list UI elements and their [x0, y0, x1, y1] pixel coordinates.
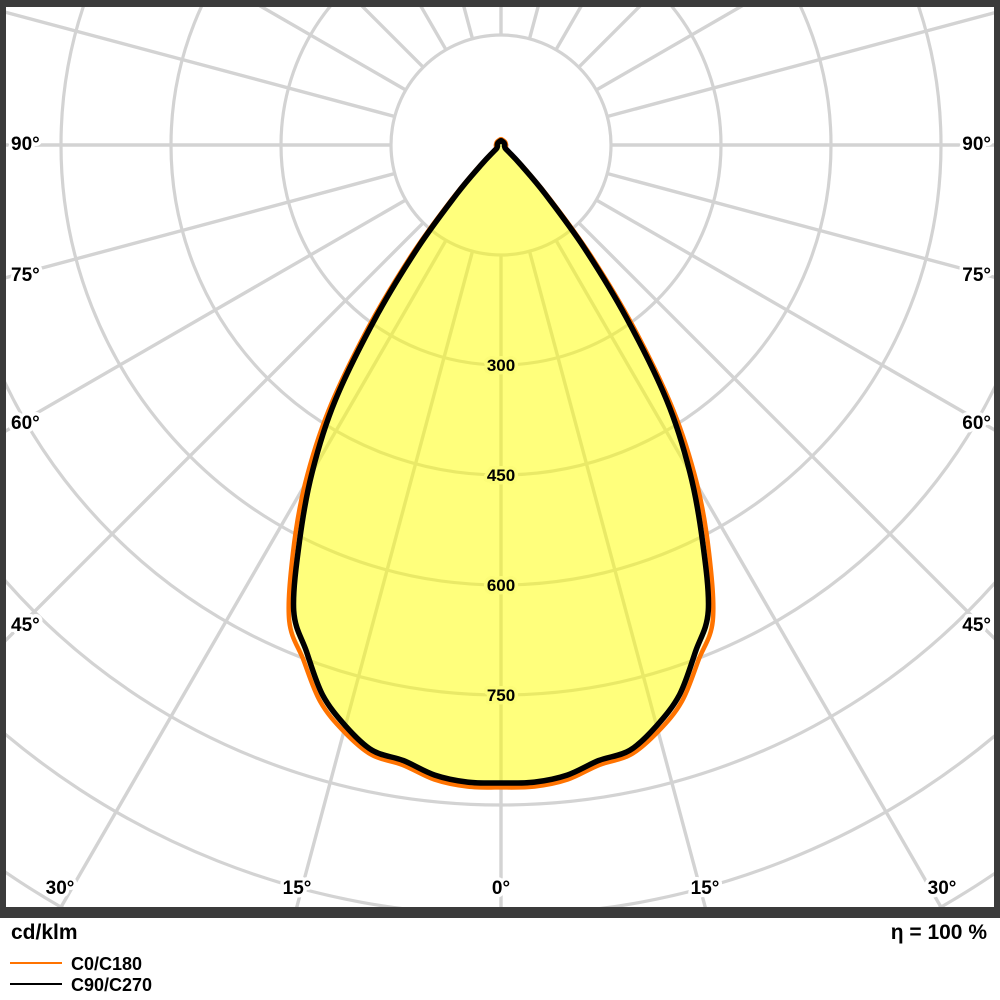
angle-label-bottom-right-15: 15° — [691, 878, 720, 899]
grid-spoke-225 — [0, 0, 423, 67]
legend-series-name: C0/C180 — [71, 954, 142, 975]
radial-value-label-300: 300 — [487, 356, 515, 375]
angle-label-bottom-right-30: 30° — [928, 878, 957, 899]
grid-spoke-120 — [596, 0, 1000, 90]
angle-label-left-60: 60° — [11, 413, 40, 434]
grid-spoke-135 — [579, 0, 1000, 67]
angle-label-right-75: 75° — [962, 265, 991, 286]
radial-value-label-450: 450 — [487, 466, 515, 485]
frame-bottom — [0, 907, 1000, 918]
photometric-diagram-page: 90°90°75°75°60°60°45°45°30°30°15°15°0°30… — [0, 0, 1000, 1000]
angle-label-bottom-0: 0° — [492, 878, 510, 899]
plot-area — [0, 0, 1000, 921]
legend-series-name: C90/C270 — [71, 975, 152, 996]
frame-top — [0, 0, 1000, 7]
angle-label-right-45: 45° — [962, 615, 991, 636]
angle-label-left-45: 45° — [11, 615, 40, 636]
grid-spoke-240 — [0, 0, 406, 90]
grid-spoke-105 — [607, 0, 1000, 117]
frame-right — [994, 0, 1000, 918]
units-label: cd/klm — [11, 921, 78, 945]
polar-distribution-chart: 90°90°75°75°60°60°45°45°30°30°15°15°0°30… — [0, 0, 1000, 921]
angle-label-left-75: 75° — [11, 265, 40, 286]
angle-label-right-90: 90° — [962, 134, 991, 155]
angle-label-right-60: 60° — [962, 413, 991, 434]
angle-label-bottom-left-30: 30° — [46, 878, 75, 899]
angle-label-bottom-left-15: 15° — [283, 878, 312, 899]
light-output-ratio-label: η = 100 % — [891, 921, 987, 945]
legend-line-swatch — [10, 962, 62, 964]
legend-line-swatch — [10, 983, 62, 985]
frame-left — [0, 0, 6, 918]
radial-value-label-600: 600 — [487, 576, 515, 595]
radial-value-label-750: 750 — [487, 686, 515, 705]
angle-label-left-90: 90° — [11, 134, 40, 155]
